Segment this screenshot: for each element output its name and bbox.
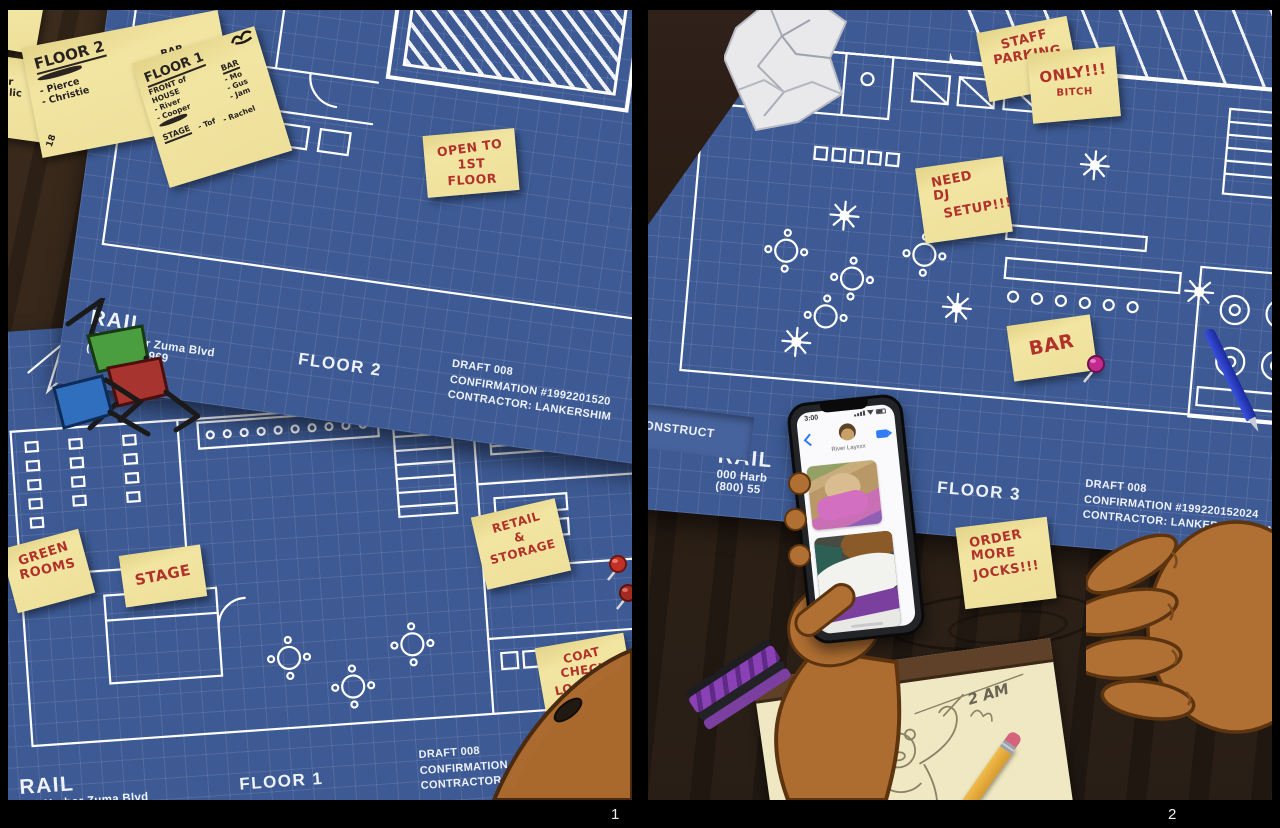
finger-on-phone bbox=[788, 472, 811, 495]
wifi-icon bbox=[867, 410, 874, 416]
floor1-company-block: RAIL 000 Harbor Zuma Blvd (800) 555-6969 bbox=[19, 760, 241, 800]
status-time: 3:00 bbox=[804, 414, 819, 422]
note-line: - Tof bbox=[196, 116, 217, 133]
contact-avatar bbox=[838, 423, 857, 442]
battery-icon bbox=[876, 408, 886, 414]
floor-label: FLOOR 1 bbox=[239, 762, 421, 795]
push-pin-magenta bbox=[1080, 352, 1106, 384]
note-line: E bbox=[8, 10, 37, 23]
video-call-icon bbox=[876, 429, 889, 438]
right-hand bbox=[1086, 492, 1272, 744]
fragment-text: ONSTRUCT bbox=[648, 418, 715, 441]
sticky-need-dj-setup: NEED DJ SETUP!!! bbox=[915, 156, 1013, 244]
comic-panel-2: RAIL 000 Harb (800) 55 FLOOR 3 DRAFT 008… bbox=[648, 10, 1272, 800]
sticky-only-bitch: ONLY!!! BITCH bbox=[1027, 46, 1121, 123]
sticky-order-more-jocks: ORDER MORE JOCKS!!! bbox=[955, 517, 1056, 610]
atrium-hatching bbox=[403, 10, 632, 96]
comic-panel-1: RAIL 000 Harbor Zuma Blvd (800) 555-6969… bbox=[8, 10, 632, 800]
floor-label: FLOOR 2 bbox=[297, 349, 451, 390]
sticky-line: ONLY!!! bbox=[1034, 59, 1112, 88]
back-icon bbox=[804, 434, 817, 447]
sticky-line: BITCH bbox=[1036, 85, 1113, 101]
sticky-line: STAGE bbox=[127, 560, 199, 592]
conversation-header: River Layxxx bbox=[797, 418, 898, 464]
photo1-garment bbox=[814, 487, 870, 523]
artist-forearm bbox=[476, 638, 632, 800]
crumpled-paper bbox=[724, 10, 856, 138]
page-number-left: 1 bbox=[611, 806, 619, 823]
sticky-open-to-first-floor: OPEN TO 1ST FLOOR bbox=[422, 128, 519, 198]
sticky-line: BAR bbox=[1014, 327, 1089, 364]
contact-name: River Layxxx bbox=[800, 440, 898, 456]
page-number-right: 2 bbox=[1168, 806, 1176, 823]
binder-clip-blue bbox=[36, 362, 156, 446]
signal-icon bbox=[854, 410, 865, 416]
finger-on-phone bbox=[784, 508, 807, 531]
push-pin-red bbox=[612, 580, 632, 612]
floor-label: FLOOR 3 bbox=[936, 477, 1085, 510]
message-photo-1 bbox=[806, 460, 882, 531]
floor2-draft-block: DRAFT 008 CONFIRMATION #1992201520 CONTR… bbox=[447, 357, 632, 434]
finger-on-phone bbox=[788, 544, 811, 567]
sticky-line: 1ST FLOOR bbox=[431, 154, 513, 189]
note-margin-number: 18 bbox=[45, 133, 59, 148]
